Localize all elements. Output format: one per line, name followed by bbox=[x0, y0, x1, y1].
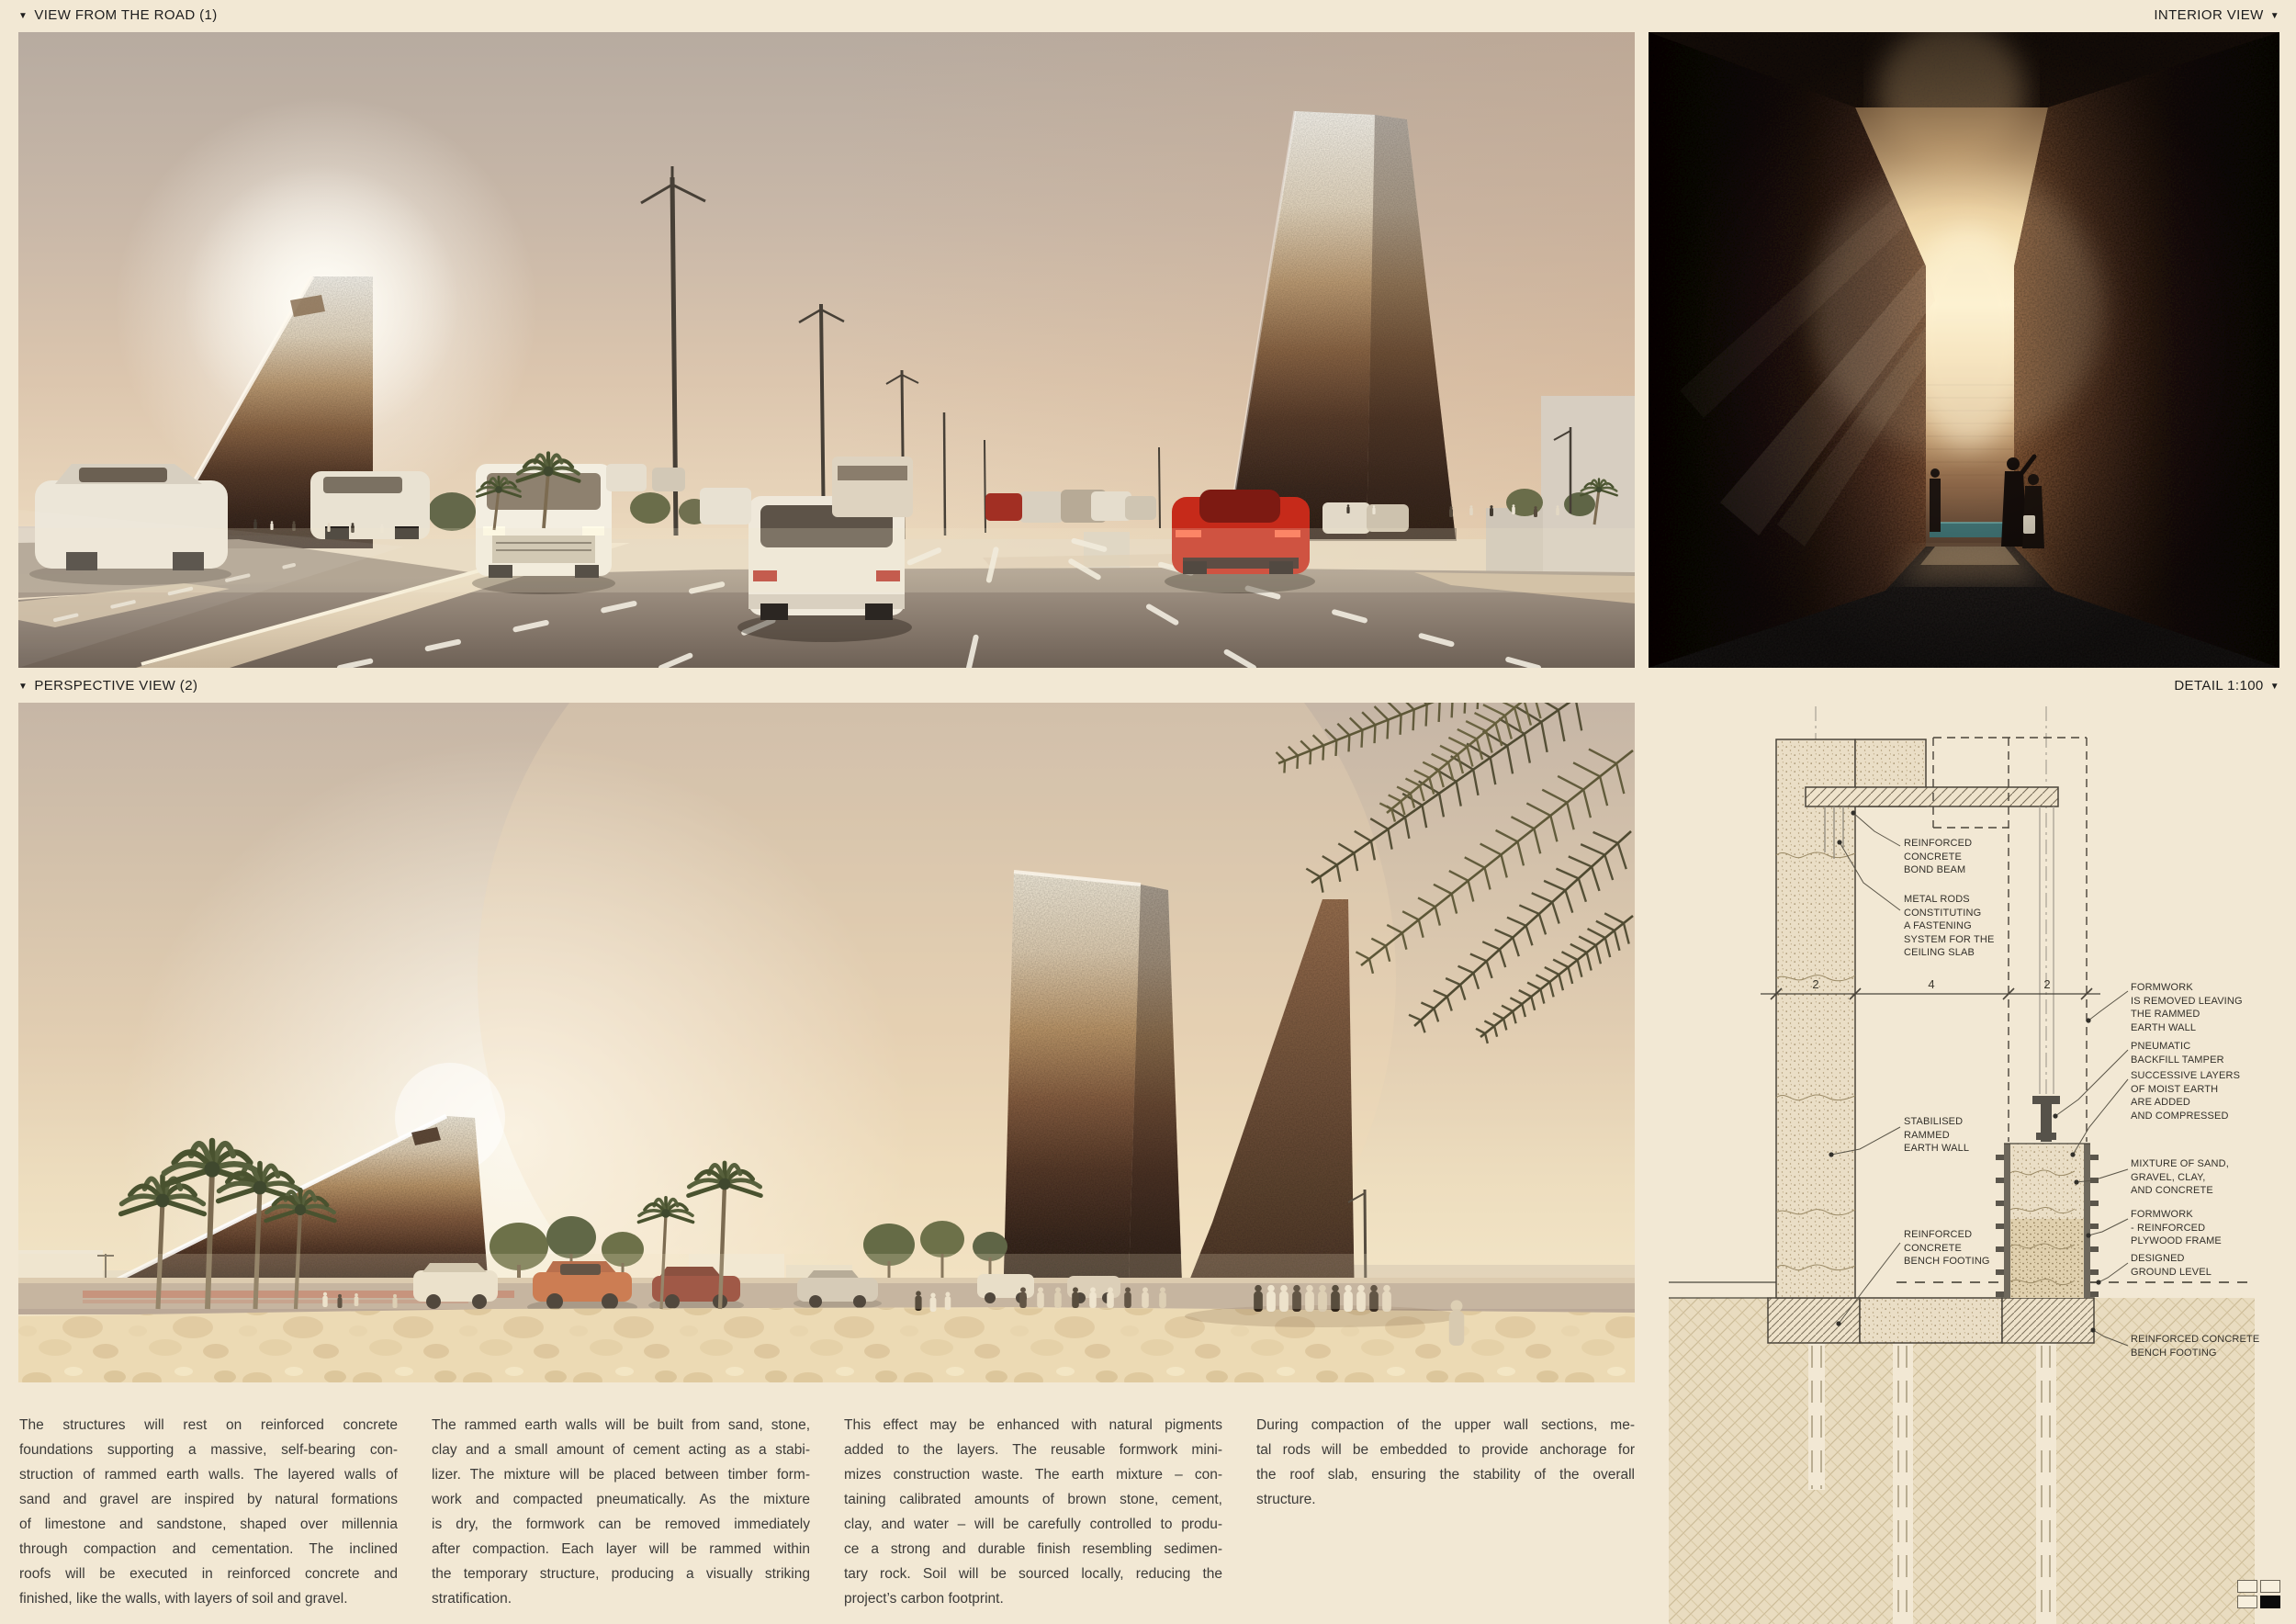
section-label-text: VIEW FROM THE ROAD (1) bbox=[34, 7, 217, 23]
sheet-cell-current bbox=[2260, 1596, 2280, 1608]
footing-right bbox=[2002, 1298, 2094, 1343]
essay-line: taining calibrated amounts of brown ston… bbox=[844, 1487, 1222, 1512]
essay-line: During compaction of the upper wall sect… bbox=[1256, 1413, 1635, 1438]
section-label-text: DETAIL 1:100 bbox=[2174, 678, 2263, 694]
essay-line: after compaction. Each layer will be ram… bbox=[432, 1537, 810, 1562]
essay-line: tal rods will be embedded to provide anc… bbox=[1256, 1438, 1635, 1462]
essay-line: clay and a small amount of cement acting… bbox=[432, 1438, 810, 1462]
essay-line: tary rock. Soil will be sourced locally,… bbox=[844, 1562, 1222, 1586]
triangle-down-icon: ▼ bbox=[2270, 11, 2279, 21]
essay-column-3: This effect may be enhanced with natural… bbox=[844, 1413, 1222, 1611]
formwork-column bbox=[1996, 1144, 2099, 1298]
section-label-detail: DETAIL 1:100▼ bbox=[2174, 678, 2279, 694]
essay-line: roofs will be executed in reinforced con… bbox=[19, 1562, 398, 1586]
interior-render bbox=[1649, 32, 2279, 668]
essay-line: struction of rammed earth walls. The lay… bbox=[19, 1462, 398, 1487]
essay-line: the roof slab, ensuring the stability of… bbox=[1256, 1462, 1635, 1487]
photo-interior-view bbox=[1649, 32, 2279, 668]
essay-line: sand and gravel are inspired by natural … bbox=[19, 1487, 398, 1512]
sheet-position-indicator bbox=[2237, 1580, 2280, 1608]
triangle-down-icon: ▼ bbox=[18, 11, 28, 21]
section-label-text: PERSPECTIVE VIEW (2) bbox=[34, 678, 197, 694]
photo-perspective-view bbox=[18, 703, 1635, 1382]
section-label-view-from-road: ▼VIEW FROM THE ROAD (1) bbox=[18, 7, 218, 23]
essay-line: structure. bbox=[1256, 1487, 1635, 1512]
essay-line: the temporary structure, producing a vis… bbox=[432, 1562, 810, 1586]
sheet-cell bbox=[2237, 1580, 2257, 1593]
essay-line: This effect may be enhanced with natural… bbox=[844, 1413, 1222, 1438]
essay-line: clay, and water – will be carefully cont… bbox=[844, 1512, 1222, 1537]
section-label-interior-view: INTERIOR VIEW▼ bbox=[2154, 7, 2279, 23]
dim-left: 2 bbox=[1812, 977, 1818, 991]
monument-tower bbox=[1003, 872, 1183, 1311]
essay-column-2: The rammed earth walls will be built fro… bbox=[432, 1413, 810, 1611]
essay-line: finished, like the walls, with layers of… bbox=[19, 1586, 398, 1611]
road-render bbox=[18, 32, 1635, 668]
bond-beam bbox=[1806, 787, 2058, 806]
dim-right: 2 bbox=[2043, 977, 2050, 991]
triangle-down-icon: ▼ bbox=[18, 682, 28, 692]
essay-column-1: The structures will rest on reinforced c… bbox=[19, 1413, 398, 1611]
perspective-render bbox=[18, 703, 1635, 1382]
essay-line: The structures will rest on reinforced c… bbox=[19, 1413, 398, 1438]
detail-drawing: 2 4 2 bbox=[1669, 703, 2296, 1624]
essay-line: work and compacted pneumatically. As the… bbox=[432, 1487, 810, 1512]
essay-line: of limestone and sandstone, shaped over … bbox=[19, 1512, 398, 1537]
detail-section: 2 4 2 bbox=[1669, 703, 2296, 1624]
triangle-down-icon: ▼ bbox=[2270, 682, 2279, 692]
tamper-icon bbox=[2032, 1096, 2060, 1142]
essay-line: stratification. bbox=[432, 1586, 810, 1611]
essay-line: The rammed earth walls will be built fro… bbox=[432, 1413, 810, 1438]
dim-middle: 4 bbox=[1928, 977, 1934, 991]
essay-line: through compaction and cementation. The … bbox=[19, 1537, 398, 1562]
sheet-cell bbox=[2260, 1580, 2280, 1593]
essay-columns: The structures will rest on reinforced c… bbox=[19, 1413, 1635, 1611]
footing-left bbox=[1768, 1298, 1860, 1343]
essay-line: ce a strong and durable finish resemblin… bbox=[844, 1537, 1222, 1562]
essay-line: lizer. The mixture will be placed betwee… bbox=[432, 1462, 810, 1487]
essay-line: project’s carbon footprint. bbox=[844, 1586, 1222, 1611]
section-label-perspective-view: ▼PERSPECTIVE VIEW (2) bbox=[18, 678, 197, 694]
essay-line: added to the layers. The reusable formwo… bbox=[844, 1438, 1222, 1462]
sheet-cell bbox=[2237, 1596, 2257, 1608]
section-label-text: INTERIOR VIEW bbox=[2154, 7, 2263, 23]
essay-line: mizes construction waste. The earth mixt… bbox=[844, 1462, 1222, 1487]
essay-line: is dry, the formwork can be removed imme… bbox=[432, 1512, 810, 1537]
essay-column-4: During compaction of the upper wall sect… bbox=[1256, 1413, 1635, 1611]
essay-line: foundations supporting a massive, self-b… bbox=[19, 1438, 398, 1462]
photo-view-from-road bbox=[18, 32, 1635, 668]
